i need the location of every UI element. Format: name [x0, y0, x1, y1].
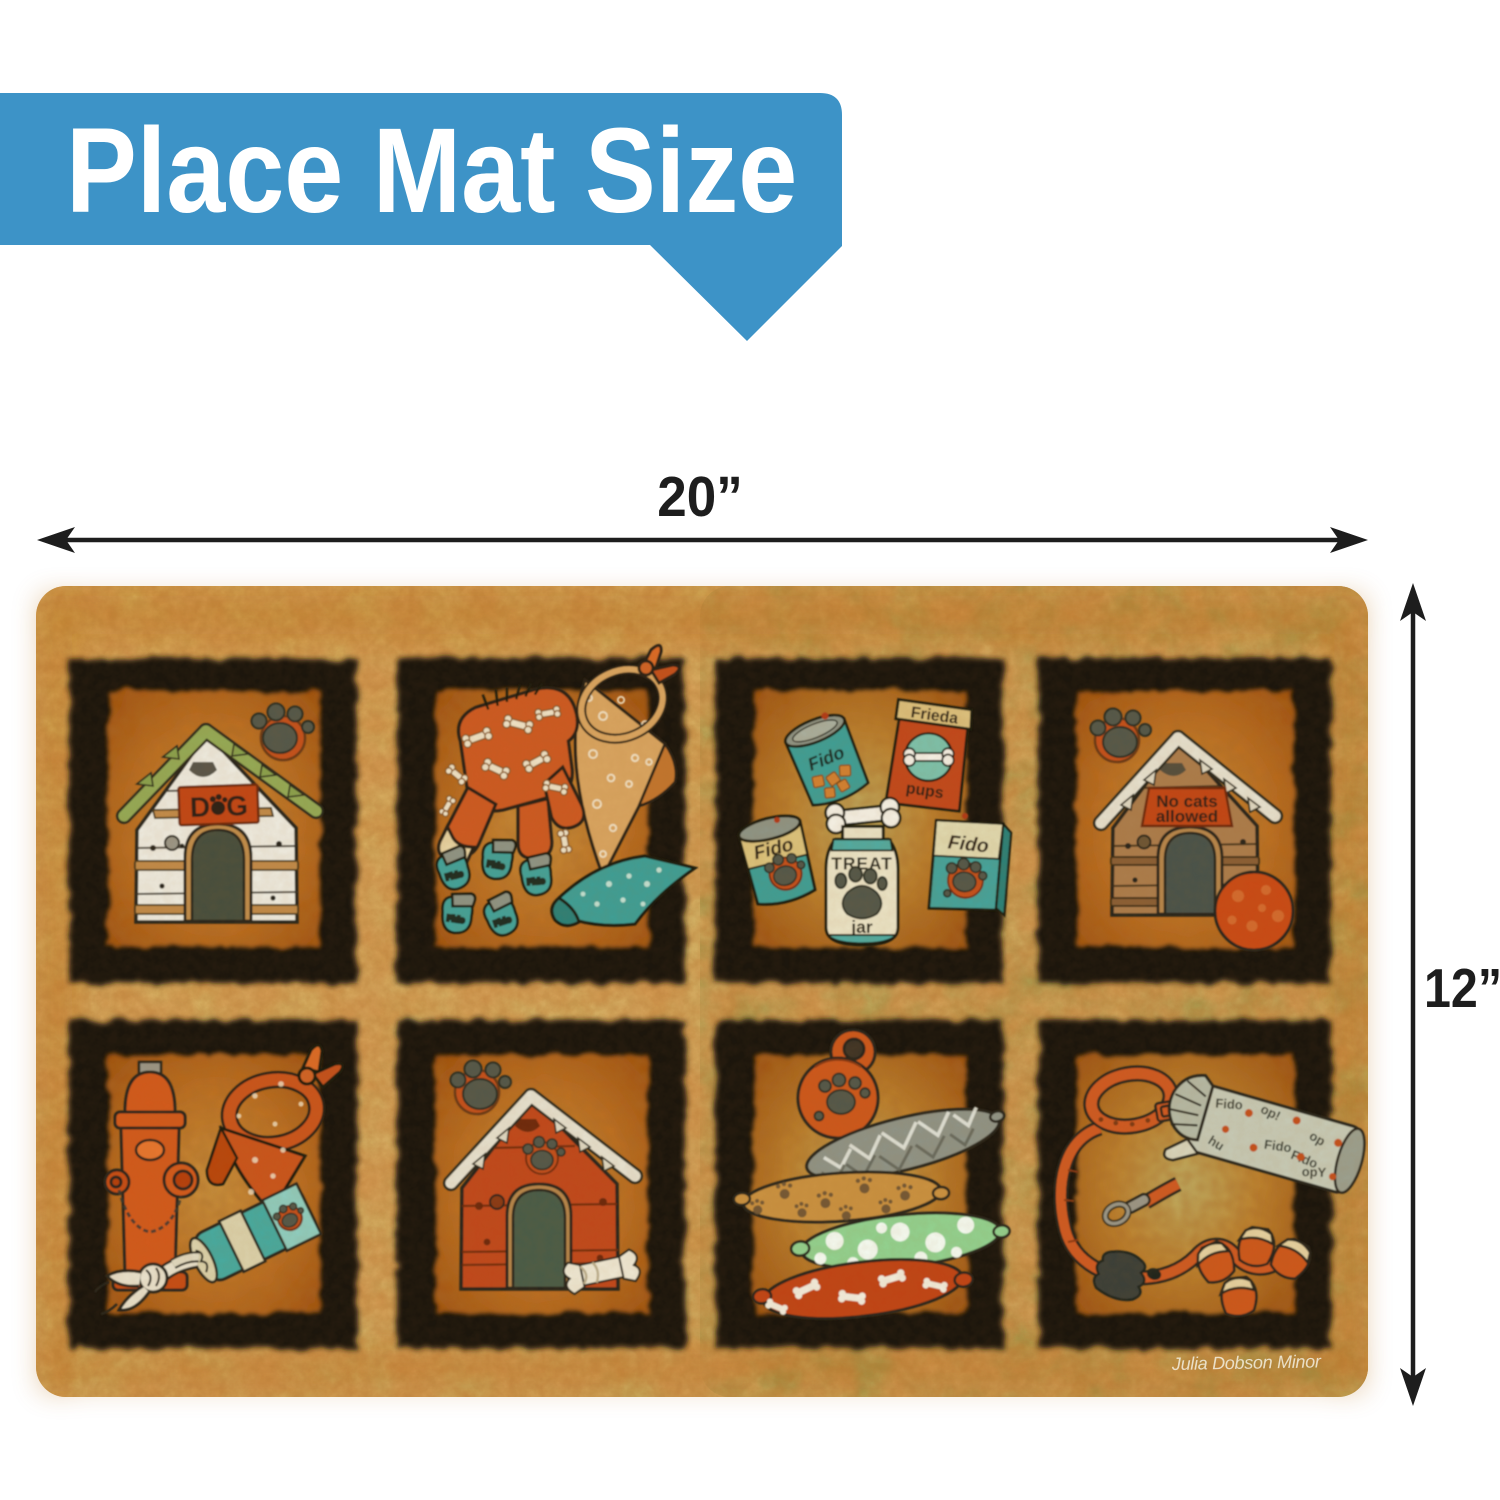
svg-text:12”: 12”	[1424, 957, 1500, 1019]
svg-text:Place Mat Size: Place Mat Size	[66, 104, 797, 239]
svg-text:Julia Dobson Minor: Julia Dobson Minor	[1171, 1351, 1322, 1374]
svg-text:20”: 20”	[657, 464, 742, 528]
